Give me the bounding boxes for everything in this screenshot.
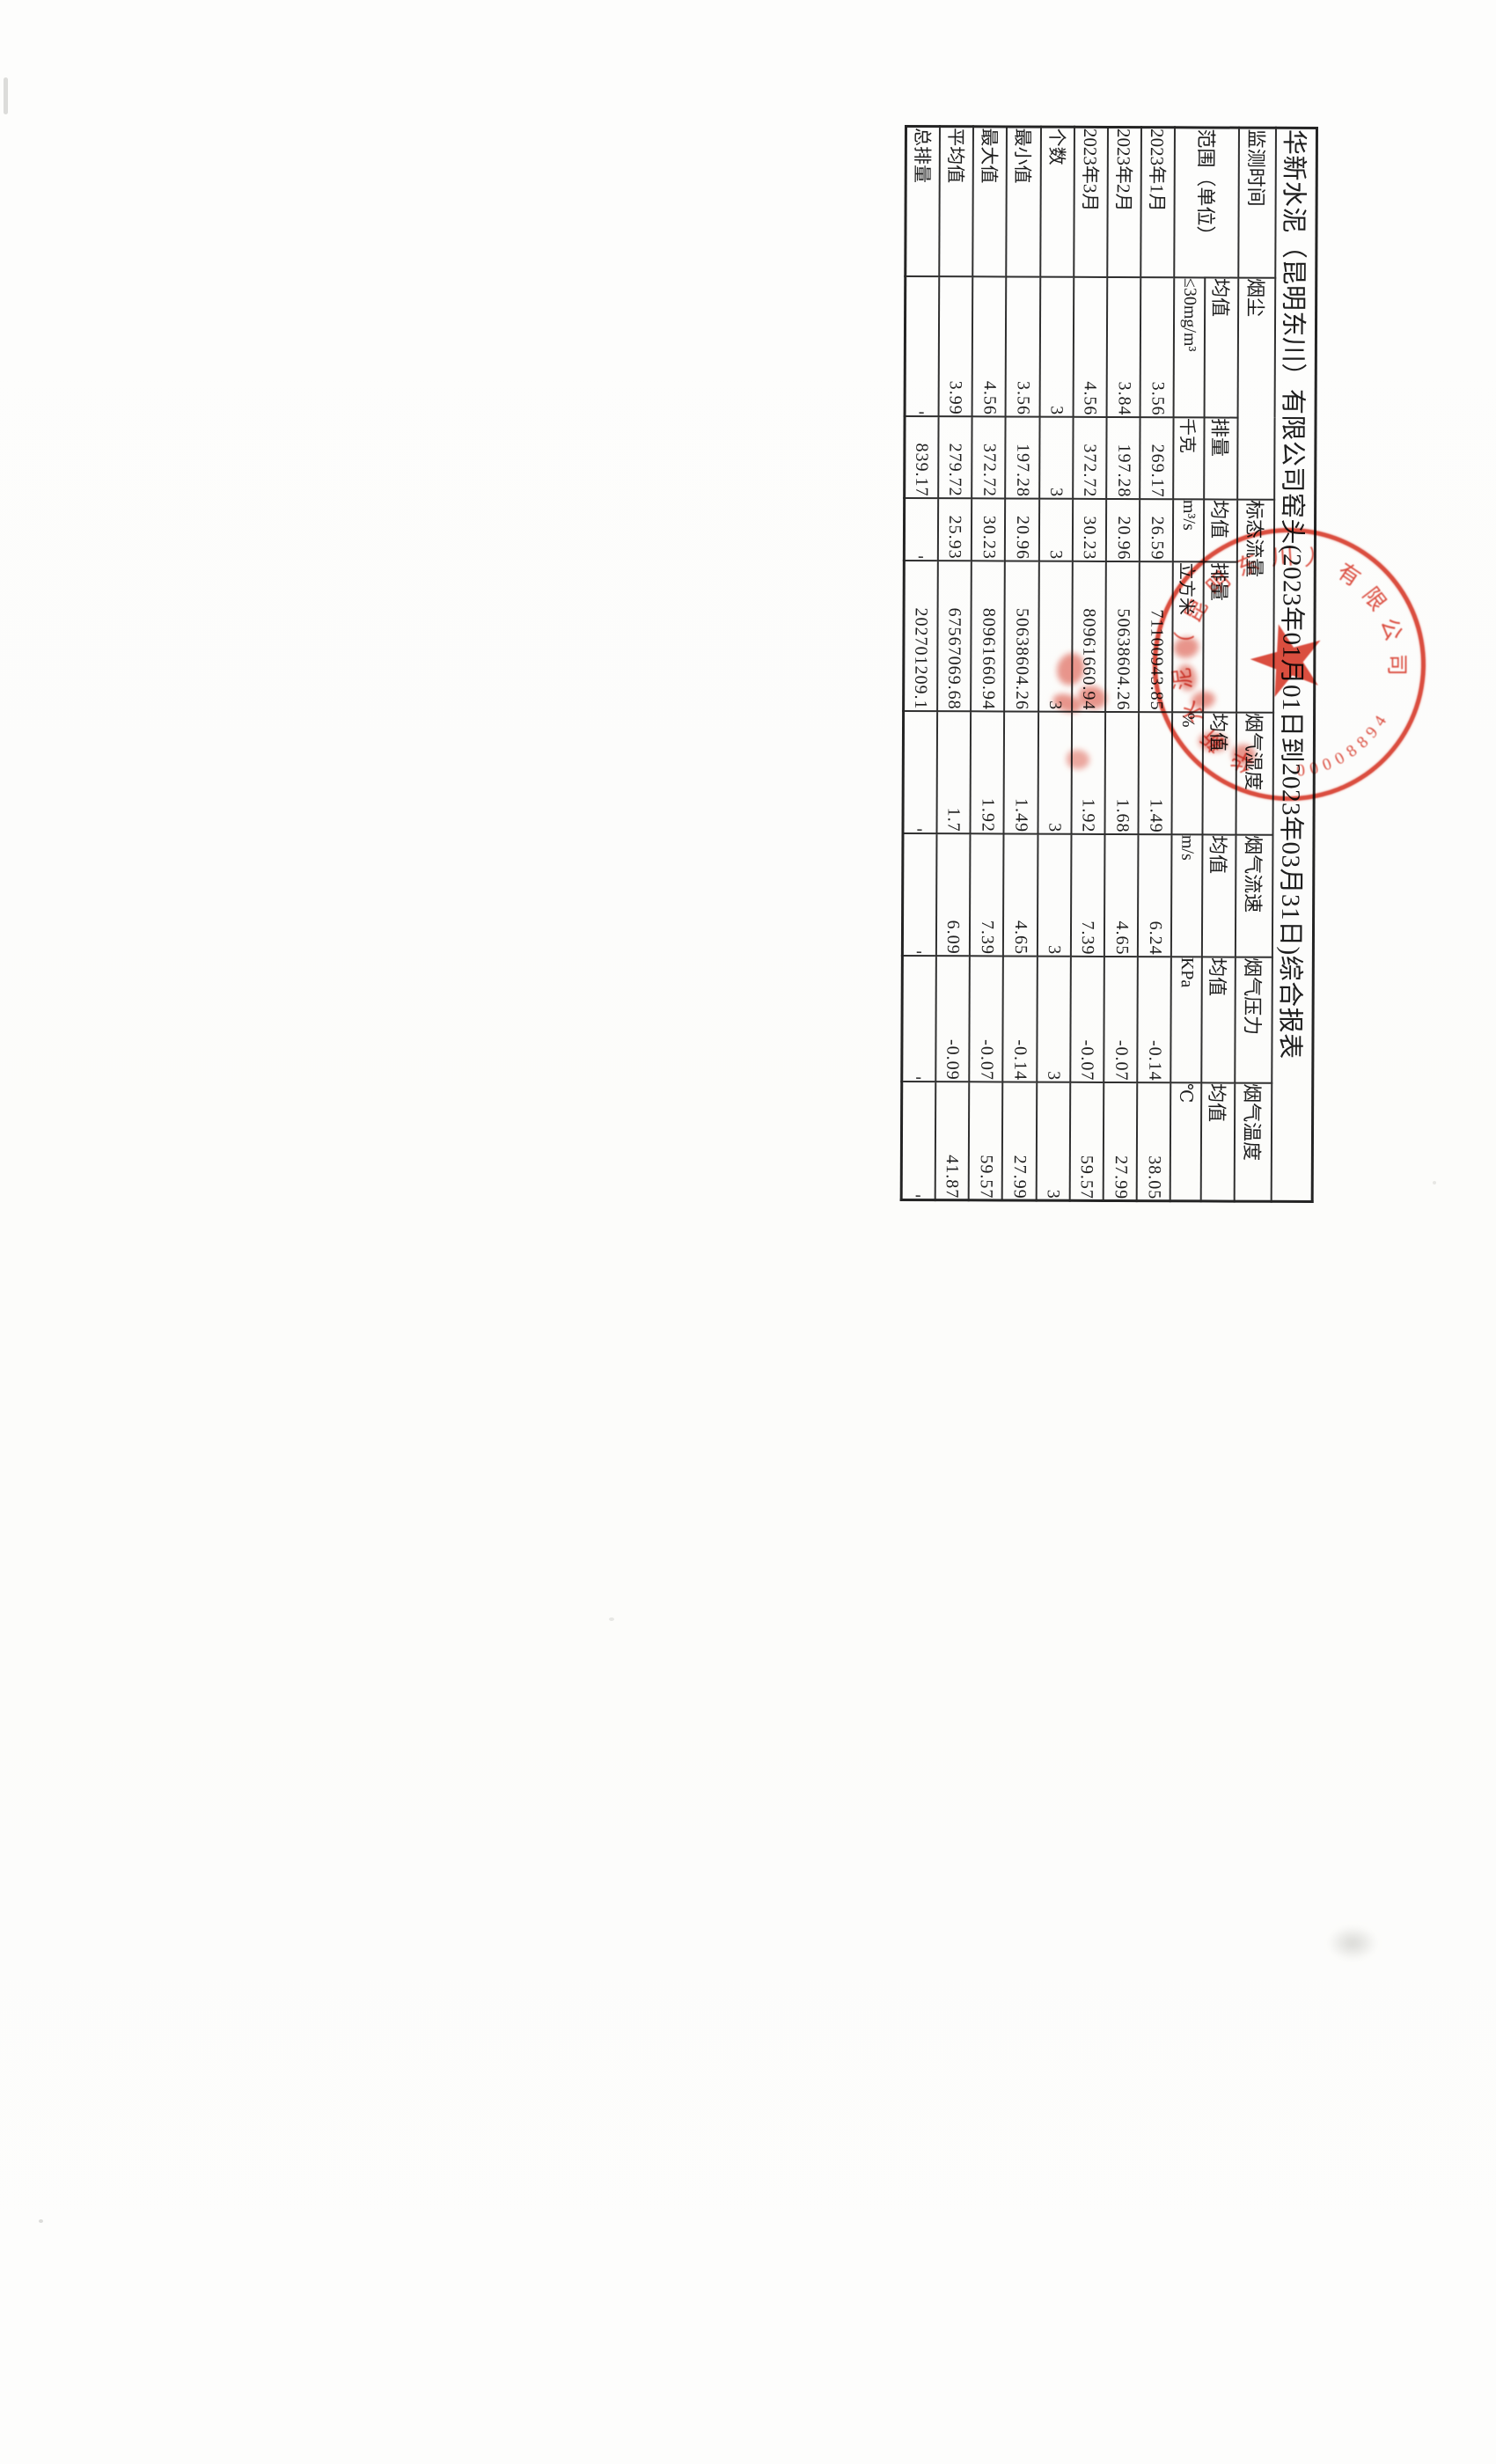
cell-value: 59.57: [1069, 1082, 1104, 1200]
cell-value: -: [904, 497, 938, 560]
row-label: 平均值: [939, 127, 973, 276]
stamp-arc-char: 川: [1270, 539, 1294, 573]
no-data-dash: -: [915, 1185, 921, 1199]
cell-value: 50638604.26: [1004, 561, 1038, 711]
cell-value: 279.72: [938, 416, 972, 498]
table-row: 平均值3.99279.7225.9367567069.681.76.09-0.0…: [935, 127, 974, 1200]
cell-value: 7.39: [970, 833, 1004, 956]
row-label: 最大值: [972, 127, 1007, 276]
cell-value: 372.72: [972, 416, 1006, 498]
no-data-dash: -: [919, 402, 925, 416]
cell-value: 1.49: [1004, 711, 1038, 833]
cell-value: 3.99: [938, 276, 972, 416]
table-row: 最小值3.56197.2820.9650638604.261.494.65-0.…: [1002, 127, 1041, 1200]
unit-temperature-mean: ℃: [1170, 1082, 1201, 1201]
cell-value: -: [903, 710, 937, 832]
header-pressure-mean: 均值: [1201, 957, 1236, 1082]
stamp-ink-smear: [1067, 750, 1089, 769]
cell-value: 372.72: [1073, 416, 1107, 498]
cell-value: 3.56: [1140, 277, 1175, 417]
cell-value: -: [905, 275, 939, 415]
cell-value: -0.07: [1104, 956, 1138, 1082]
cell-value: 4.56: [1073, 276, 1107, 416]
cell-value: 1.49: [1139, 712, 1173, 834]
row-label: 最小值: [1007, 127, 1041, 276]
header-group-gas-temperature: 烟气温度: [1235, 1082, 1272, 1201]
no-data-dash: -: [918, 546, 924, 561]
unit-velocity-mean: m/s: [1171, 834, 1202, 957]
header-dust-mean: 均值: [1204, 277, 1238, 417]
unit-dust-discharge: 千克: [1174, 417, 1205, 499]
unit-dust-mean: ≤30mg/m³: [1174, 277, 1205, 417]
cell-value: 3: [1038, 498, 1073, 561]
cell-value: -: [902, 955, 936, 1081]
no-data-dash: -: [916, 942, 922, 956]
scan-speck: [4, 77, 8, 114]
cell-value: 4.56: [972, 276, 1007, 416]
unit-flow-mean: m³/s: [1173, 499, 1204, 561]
cell-value: 269.17: [1140, 417, 1174, 499]
row-label: 2023年2月: [1107, 127, 1141, 276]
cell-value: 20.96: [1005, 498, 1039, 561]
cell-value: 3.56: [1006, 276, 1040, 416]
cell-value: 3.84: [1107, 276, 1141, 416]
cell-value: 38.05: [1137, 1082, 1171, 1201]
cell-value: 6.09: [936, 833, 971, 956]
cell-value: -0.14: [1003, 956, 1038, 1082]
unit-pressure-mean: KPa: [1171, 957, 1202, 1082]
cell-value: -0.07: [969, 956, 1003, 1082]
cell-value: 3: [1036, 1082, 1070, 1200]
cell-value: 6.24: [1138, 834, 1172, 957]
scanned-page: 华新水泥（昆明东川）有限公司窑头(2023年01月01日到2023年03月31日…: [0, 0, 1496, 2464]
stamp-arc-char: 0: [1295, 761, 1306, 781]
row-label: 总排量: [906, 126, 940, 275]
header-dust-discharge: 排量: [1204, 417, 1238, 499]
table-row: 最大值4.56372.7230.2380961660.941.927.39-0.…: [969, 127, 1008, 1200]
cell-value: -: [901, 1081, 935, 1199]
cell-value: 20.96: [1106, 498, 1140, 561]
cell-value: 4.65: [1003, 833, 1038, 956]
scan-speck: [609, 1617, 614, 1621]
header-group-dust: 烟尘: [1237, 277, 1275, 499]
cell-value: -: [902, 832, 936, 955]
cell-value: 3: [1037, 956, 1071, 1082]
stamp-arc-char: 司: [1382, 653, 1414, 675]
cell-value: 80961660.94: [971, 561, 1005, 711]
cell-value: 197.28: [1005, 416, 1039, 498]
header-range-unit: 范围（单位）: [1175, 128, 1239, 277]
no-data-dash: -: [917, 819, 923, 833]
cell-value: 26.59: [1140, 499, 1174, 561]
cell-value: 1.92: [971, 711, 1005, 833]
header-group-gas-velocity: 烟气流速: [1236, 834, 1273, 957]
cell-value: 197.28: [1106, 416, 1140, 498]
cell-value: 839.17: [905, 415, 939, 497]
cell-value: 4.65: [1104, 833, 1139, 956]
row-label: 2023年3月: [1074, 127, 1108, 276]
cell-value: 30.23: [1073, 498, 1107, 561]
header-group-gas-pressure: 烟气压力: [1235, 957, 1272, 1082]
cell-value: 3: [1039, 416, 1074, 498]
cell-value: 41.87: [935, 1082, 970, 1200]
cell-value: 67567069.68: [937, 561, 972, 711]
cell-value: 7.39: [1071, 833, 1105, 956]
scan-smudge: [1327, 1925, 1378, 1961]
cell-value: 3: [1037, 833, 1071, 956]
row-label: 个数: [1040, 127, 1074, 276]
cell-value: 30.23: [972, 498, 1006, 561]
scan-speck: [39, 2219, 43, 2223]
header-temperature-mean: 均值: [1200, 1082, 1235, 1201]
star-icon: ★: [1237, 616, 1337, 706]
cell-value: 27.99: [1104, 1082, 1138, 1200]
cell-value: 1.92: [1071, 711, 1105, 833]
cell-value: 25.93: [938, 498, 972, 561]
cell-value: 3: [1039, 276, 1074, 416]
cell-value: 3: [1038, 711, 1072, 833]
header-monitoring-time: 监测时间: [1238, 128, 1276, 277]
stamp-arc-char: 泥: [1164, 666, 1199, 693]
no-data-dash: -: [916, 1067, 922, 1082]
header-velocity-mean: 均值: [1202, 834, 1236, 957]
scan-speck: [1433, 1181, 1436, 1184]
cell-value: 59.57: [969, 1082, 1003, 1200]
cell-value: 27.99: [1002, 1082, 1037, 1200]
table-row: 总排量-839.17-202701209.1----: [901, 126, 940, 1199]
row-label: 2023年1月: [1140, 128, 1175, 277]
cell-value: 1.7: [936, 711, 971, 833]
cell-value: -0.14: [1137, 957, 1171, 1082]
cell-value: -0.09: [935, 956, 970, 1082]
cell-value: -0.07: [1070, 956, 1104, 1082]
cell-value: 202701209.1: [904, 560, 938, 710]
cell-value: 1.68: [1104, 711, 1139, 833]
